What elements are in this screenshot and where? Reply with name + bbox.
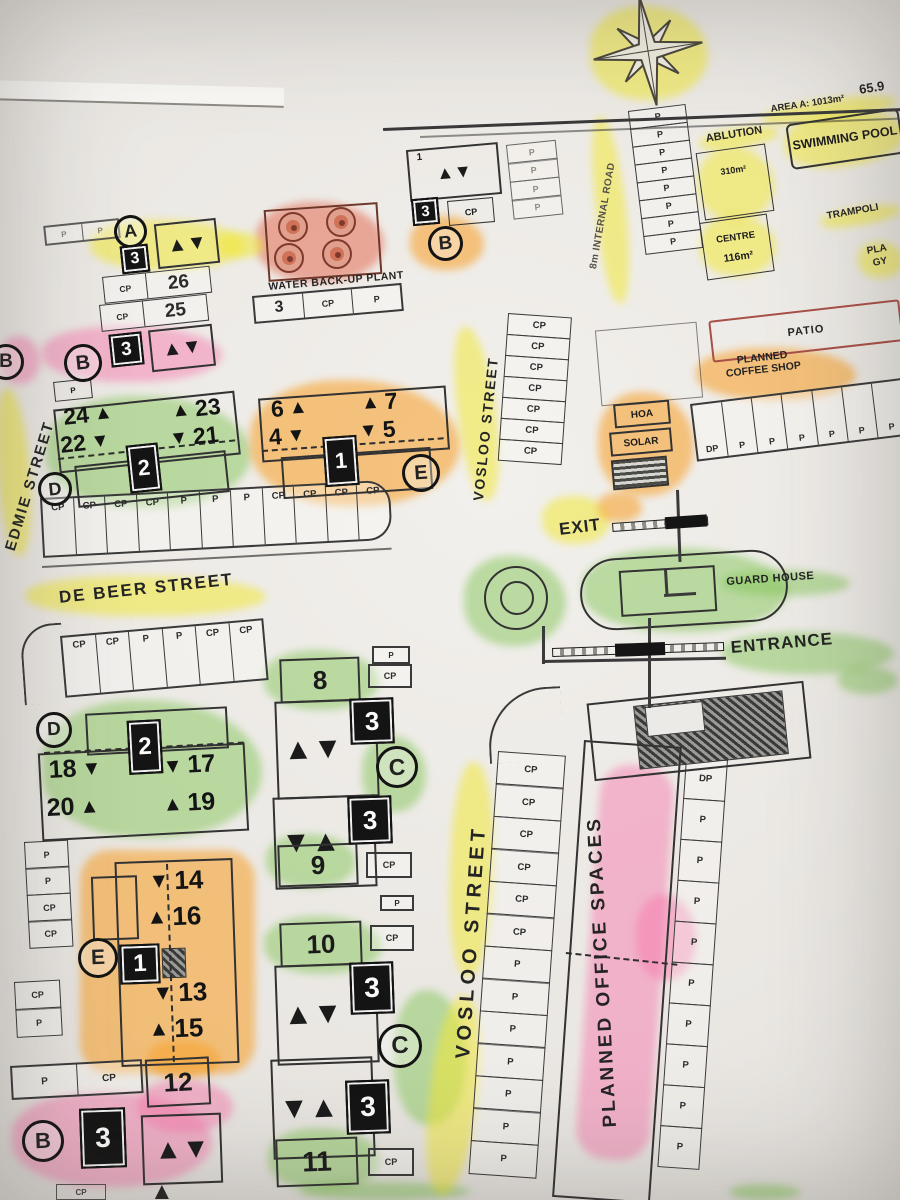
parking-cell: P xyxy=(669,961,714,1006)
letter-b: B xyxy=(35,1128,52,1155)
unit-count-box: 3 xyxy=(79,1107,127,1169)
unit-21-label: 21 xyxy=(192,421,220,451)
unit-6-row: 6▲ xyxy=(270,393,308,422)
unit-count-box: 3 xyxy=(347,795,393,845)
unit-count-box: 3 xyxy=(349,697,395,745)
down-arrow: ▼ xyxy=(90,431,111,452)
unit-5-row: ▼5 xyxy=(358,415,396,444)
water-tank-icon xyxy=(278,212,308,242)
left-parking-col-b: CPP xyxy=(14,981,63,1038)
hoa-room: HOA xyxy=(613,400,671,429)
p-label: P xyxy=(70,385,76,395)
solar-label: SOLAR xyxy=(623,435,659,449)
paper-background: 65.9 AREA A: 1013m² SWIMMING POOL ABLUTI… xyxy=(0,0,900,1200)
down-arrow: ▼ xyxy=(168,428,189,449)
down-arrow: ▼ xyxy=(162,755,183,776)
down-arrow: ▼ xyxy=(286,425,306,445)
stand-1-hatch xyxy=(161,948,186,979)
parking-cell: CP xyxy=(95,632,133,693)
m1-cp-cell: CP xyxy=(368,664,412,688)
ablution-area-box: 310m² xyxy=(696,143,775,220)
unit-5-label: 5 xyxy=(382,415,397,443)
cp-label: CP xyxy=(75,1188,86,1197)
unit-4-label: 4 xyxy=(268,423,283,451)
unit-22-row: 22▼ xyxy=(59,427,111,459)
water-tank-icon xyxy=(326,207,356,237)
unit-9-cell: 9 xyxy=(277,843,358,888)
unit-20-label: 20 xyxy=(46,793,75,823)
count-3: 3 xyxy=(130,250,141,269)
unit-16-row: ▲16 xyxy=(146,900,202,933)
unit-14-label: 14 xyxy=(174,864,204,896)
m2-p-cell: P xyxy=(380,895,414,911)
parking-cell: P xyxy=(512,194,564,219)
unit-9-label: 9 xyxy=(310,849,326,880)
letter-c: C xyxy=(391,1032,409,1061)
vosloo-cp-col: CPCPCPCPCPCPCP xyxy=(498,314,572,465)
unit-10-cell: 10 xyxy=(279,921,362,968)
parking-cell: CP xyxy=(370,1150,412,1174)
direction-arrows: ▲▼ xyxy=(161,336,202,360)
count-3: 3 xyxy=(120,338,133,361)
letter-d: D xyxy=(47,719,62,742)
count-3: 3 xyxy=(364,705,380,736)
parking-cell: P xyxy=(351,285,402,313)
down-arrow: ▼ xyxy=(81,758,102,779)
count-cell: 3 xyxy=(254,294,304,322)
parking-cell: CP xyxy=(370,666,410,686)
parking-cell: P xyxy=(672,920,717,965)
ablution-area-label: 310m² xyxy=(720,163,747,177)
unit-13-row: ▼13 xyxy=(152,976,208,1009)
parking-cell: P xyxy=(25,866,70,896)
parking-cell: CP xyxy=(62,635,99,696)
water-tank-icon xyxy=(274,243,304,273)
parking-cell: P xyxy=(677,838,722,883)
stand-number: 1 xyxy=(133,950,147,978)
parking-cell: P xyxy=(45,224,82,244)
unit-23-label: 23 xyxy=(194,393,222,423)
up-arrow: ▲ xyxy=(79,796,100,817)
parking-cell: P xyxy=(680,797,725,842)
parking-cell: CP xyxy=(103,273,147,302)
parking-cell: P xyxy=(24,839,69,869)
letter-b: B xyxy=(0,351,13,373)
down-arrow: ▼ xyxy=(358,421,378,441)
up-arrow: ▲ xyxy=(93,403,114,424)
unit-count-box: 3 xyxy=(345,1079,391,1135)
parking-cell: P xyxy=(167,492,201,550)
stand-2-box: 2 xyxy=(126,442,163,493)
hoa-building-outline xyxy=(595,322,703,407)
unit-25-label: 25 xyxy=(142,295,208,327)
arrows-box: ▲▼ xyxy=(154,218,220,269)
unit-19-row: ▲19 xyxy=(162,787,216,819)
road-corner-curve-2 xyxy=(486,686,564,764)
parking-cell: CP xyxy=(302,289,353,317)
parking-cell: P xyxy=(660,1084,705,1129)
parking-cell: CP xyxy=(14,979,61,1010)
building-stair-detail xyxy=(645,701,706,737)
unit-13-label: 13 xyxy=(178,976,208,1008)
parking-cell: CP xyxy=(100,301,144,330)
unit-4-row: 4▼ xyxy=(268,421,306,450)
unit-11-cell: 11 xyxy=(275,1137,359,1188)
block-e2-notch xyxy=(91,875,139,941)
traffic-island-inner xyxy=(500,581,534,615)
unit-16-label: 16 xyxy=(172,900,202,932)
unit-21-row: ▼21 xyxy=(168,421,220,453)
letter-d: D xyxy=(47,478,62,500)
parking-cell: P xyxy=(666,1002,711,1047)
parking-cell: CP xyxy=(228,620,266,681)
unit-count-box: 3 xyxy=(411,197,440,226)
parking-cell: CP xyxy=(42,498,75,556)
up-arrow: ▲ xyxy=(360,393,380,413)
entrance-road-center xyxy=(648,618,651,708)
parking-cell: CP xyxy=(372,927,412,949)
direction-arrows: ▲▼ xyxy=(283,998,343,1030)
unit-10-label: 10 xyxy=(306,928,336,960)
stand-number: 2 xyxy=(137,454,152,481)
lower-left-parking-row: CPCPPPCPCP xyxy=(60,618,269,698)
entrance-road-edge-v xyxy=(542,626,545,664)
cp-cell: CP xyxy=(447,197,495,226)
block-topmid-outline: 1 ▲▼ xyxy=(406,142,502,202)
count-3: 3 xyxy=(95,1122,112,1155)
solar-panel-icon xyxy=(611,456,669,491)
letter-b: B xyxy=(438,232,454,255)
stand-number: 2 xyxy=(138,733,153,762)
left-parking-col-a: PPCPCP xyxy=(24,841,73,949)
down-arrow: ▼ xyxy=(148,870,170,892)
parking-cell: P xyxy=(663,1043,708,1088)
letter-a: A xyxy=(123,220,138,242)
unit-count-box: 3 xyxy=(349,961,395,1015)
unit-19-label: 19 xyxy=(187,787,216,817)
unit-7-row: ▲7 xyxy=(360,387,398,416)
letter-e: E xyxy=(414,461,429,485)
count-3: 3 xyxy=(421,203,431,221)
unit-15-row: ▲15 xyxy=(148,1012,204,1045)
boundary-dimension: 65.9 xyxy=(858,78,885,97)
centre-label: CENTRE xyxy=(716,229,756,245)
unit-11-label: 11 xyxy=(302,1145,333,1178)
unit-18-label: 18 xyxy=(48,755,77,785)
p-cell: P xyxy=(53,378,93,402)
unit-20-row: 20▲ xyxy=(46,791,100,823)
unit-15-label: 15 xyxy=(174,1012,204,1044)
unit-8-label: 8 xyxy=(312,664,328,695)
centre-box: CENTRE 116m² xyxy=(699,214,774,281)
unit-24-label: 24 xyxy=(62,401,90,431)
arrows-box: ▲▼ xyxy=(148,324,216,372)
letter-c: C xyxy=(388,753,406,781)
letter-b: B xyxy=(75,351,92,375)
up-arrow: ▲ xyxy=(146,906,168,928)
up-arrow: ▲ xyxy=(148,1018,170,1040)
swimming-pool-label: SWIMMING POOL xyxy=(792,125,898,154)
partial-arrow: ▲ xyxy=(150,1178,174,1200)
direction-arrows: ▲▼ xyxy=(166,231,207,255)
parking-cell: P xyxy=(657,1125,702,1170)
unit-6-label: 6 xyxy=(270,395,285,423)
parking-cell: CP xyxy=(195,623,233,684)
m1-p-cell: P xyxy=(372,646,410,664)
unit-17-row: ▼17 xyxy=(162,749,216,781)
unit-count-box: 3 xyxy=(120,244,151,275)
count-3: 3 xyxy=(364,972,381,1005)
unit-12-label: 12 xyxy=(163,1066,194,1098)
count-3: 3 xyxy=(362,804,378,835)
parking-cell: P xyxy=(128,629,166,690)
parking-cell: CP xyxy=(498,438,563,465)
parking-cell: P xyxy=(469,1140,539,1179)
unit-18-row: 18▼ xyxy=(48,753,102,785)
unit-8-cell: 8 xyxy=(279,657,360,704)
paper-edge xyxy=(0,80,284,108)
stand-1-box: 1 xyxy=(322,435,359,487)
parking-cell: CP xyxy=(28,919,73,949)
m2-cp-cell: CP xyxy=(370,925,414,951)
arrows-box: ▲▼ xyxy=(141,1113,223,1186)
direction-arrows: ▲▼ xyxy=(435,161,472,182)
centre-area-label: 116m² xyxy=(723,248,754,264)
cp-cell: CP xyxy=(56,1184,106,1200)
guard-house-building xyxy=(619,565,718,617)
entrance-boom-gate xyxy=(552,642,724,657)
parking-cell: P xyxy=(230,488,264,546)
direction-arrows: ▲▼ xyxy=(283,733,343,765)
parking-cell: P xyxy=(199,490,233,548)
entrance-road-edge-h xyxy=(542,657,726,663)
compass-icon xyxy=(575,0,722,119)
stand-2-box: 2 xyxy=(127,719,164,775)
direction-arrows: ▼▲ xyxy=(279,1092,339,1124)
up-arrow: ▲ xyxy=(170,400,191,421)
unit-1-small-label: 1 xyxy=(416,152,423,163)
down-arrow: ▼ xyxy=(152,982,174,1004)
unit-7-label: 7 xyxy=(384,387,399,415)
parking-cell: P xyxy=(161,626,199,687)
water-tank-icon xyxy=(322,239,352,269)
unit-17-label: 17 xyxy=(187,749,216,779)
parking-cell: CP xyxy=(27,892,72,922)
direction-arrows: ▲▼ xyxy=(154,1134,210,1164)
parking-cell: P xyxy=(382,897,412,909)
topmid-parking-col: PPPP xyxy=(506,141,563,220)
parking-cell: P xyxy=(15,1007,62,1038)
unit-22-label: 22 xyxy=(59,429,87,459)
letter-e: E xyxy=(91,946,106,970)
cp-label: CP xyxy=(464,206,477,217)
stand-number: 1 xyxy=(334,448,348,475)
unit-count-box: 3 xyxy=(108,331,144,367)
parking-cell: CP xyxy=(136,493,170,551)
up-arrow: ▲ xyxy=(288,397,308,417)
parking-cell: P xyxy=(12,1065,77,1098)
up-arrow: ▲ xyxy=(162,793,183,814)
parking-cell: P xyxy=(374,648,408,662)
count-3: 3 xyxy=(360,1091,377,1124)
unit-14-row: ▼14 xyxy=(148,864,204,897)
hoa-label: HOA xyxy=(630,408,653,421)
patio-label: PATIO xyxy=(787,323,825,339)
parking-cell: P xyxy=(675,879,720,924)
road-corner-curve xyxy=(19,623,66,706)
